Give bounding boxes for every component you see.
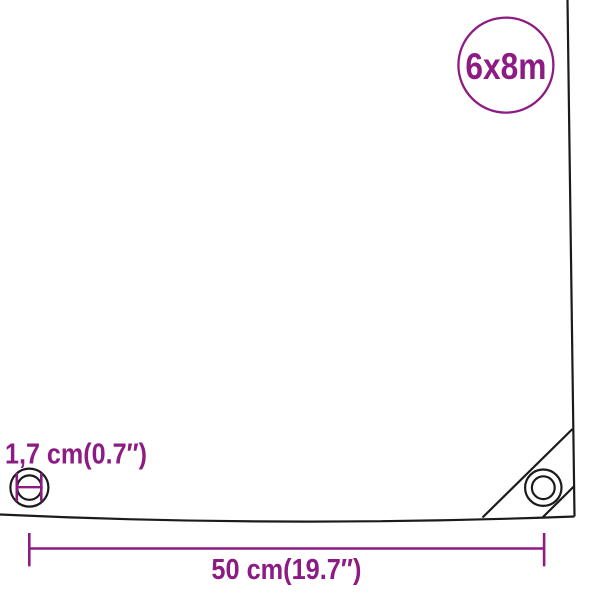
svg-text:6x8m: 6x8m <box>465 46 546 87</box>
svg-text:1,7 cm(0.7″): 1,7 cm(0.7″) <box>5 438 147 470</box>
svg-text:50 cm(19.7″): 50 cm(19.7″) <box>211 554 361 586</box>
